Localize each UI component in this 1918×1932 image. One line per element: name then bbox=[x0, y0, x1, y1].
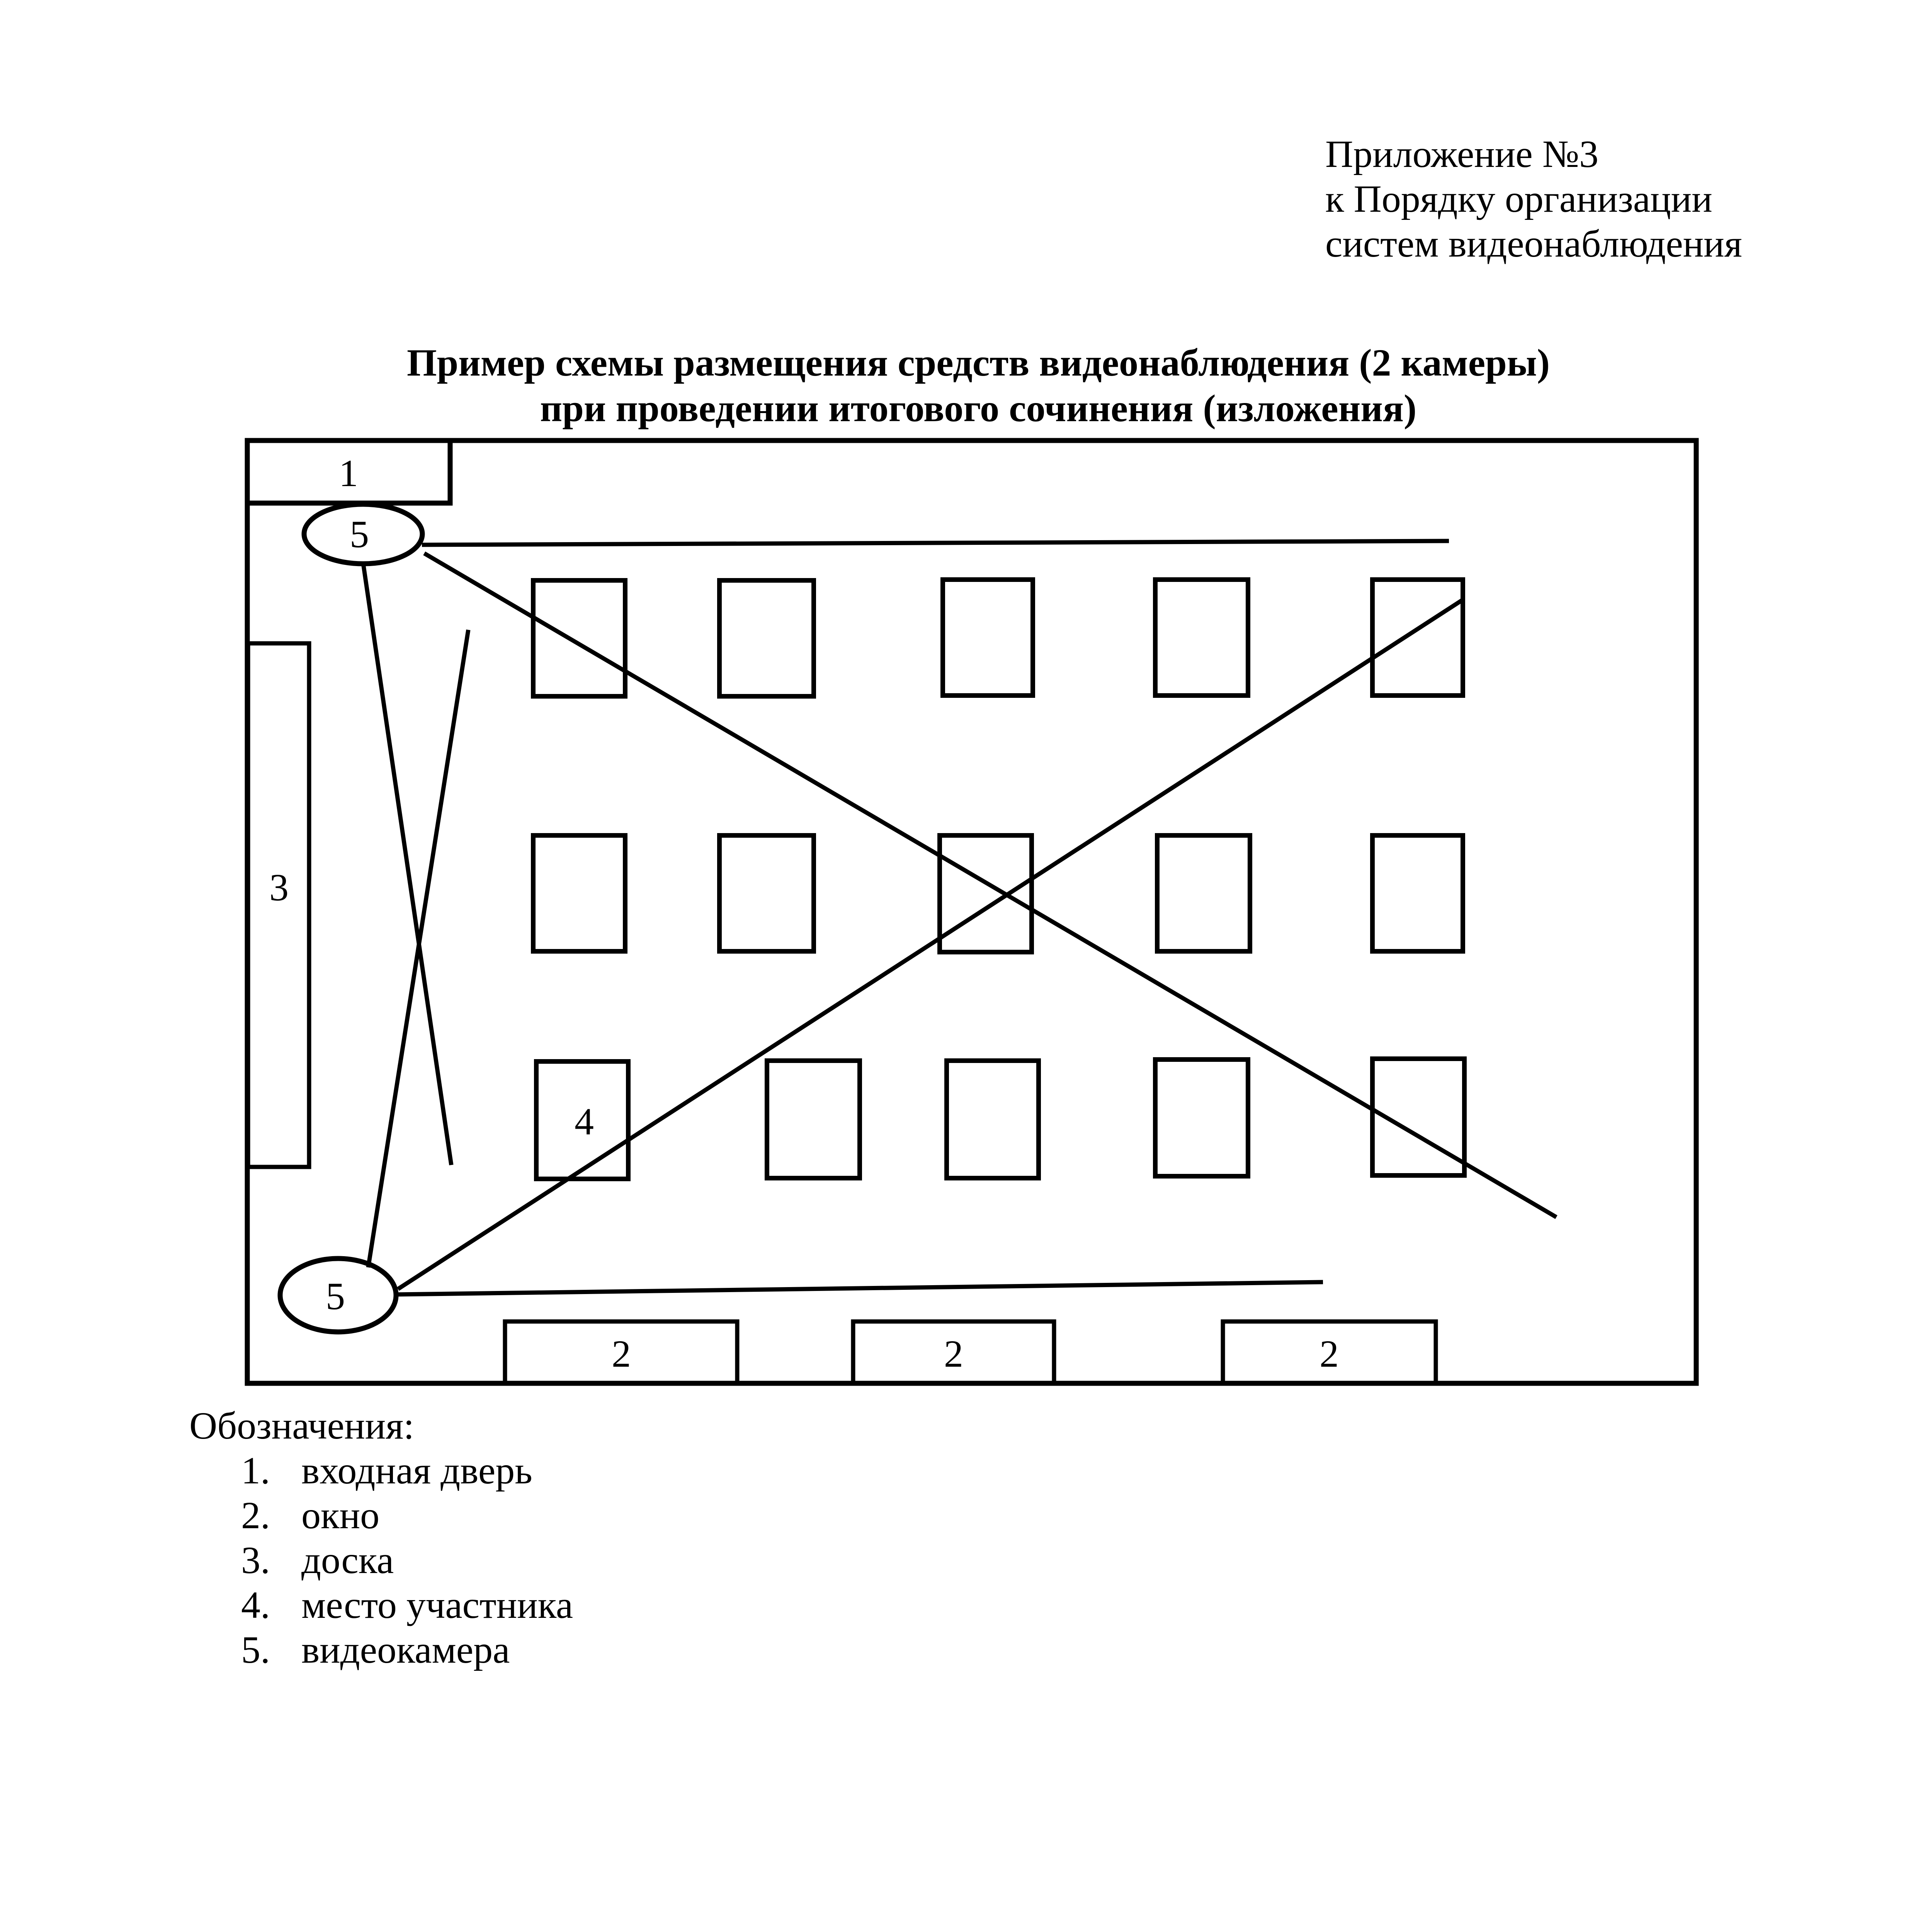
seat-box-r2c3 bbox=[940, 835, 1032, 952]
legend-heading: Обозначения: bbox=[189, 1403, 414, 1448]
legend-item-door: 1.входная дверь bbox=[241, 1448, 573, 1493]
legend-item-window-text: окно bbox=[301, 1494, 379, 1537]
legend-item-camera-number: 5. bbox=[241, 1628, 301, 1672]
camera-top-sight-line-diagonal bbox=[424, 553, 1556, 1217]
seat-box-r1c1 bbox=[533, 580, 625, 696]
seat-box-r2c1 bbox=[533, 835, 625, 951]
legend-item-camera: 5.видеокамера bbox=[241, 1628, 573, 1672]
seat-box-r3c2 bbox=[767, 1061, 860, 1178]
entrance-door-label: 1 bbox=[339, 452, 358, 495]
legend-item-board: 3.доска bbox=[241, 1538, 573, 1583]
seat-box-r3c4 bbox=[1155, 1060, 1248, 1176]
legend-item-board-text: доска bbox=[301, 1539, 394, 1582]
legend-item-window: 2.окно bbox=[241, 1493, 573, 1538]
legend-list: 1.входная дверь 2.окно 3.доска 4.место у… bbox=[241, 1448, 573, 1672]
seat-box-r2c2 bbox=[719, 835, 814, 951]
seat-box-r1c3 bbox=[943, 580, 1033, 696]
camera-bottom-sight-line-left bbox=[368, 630, 468, 1267]
seat-box-r1c2 bbox=[719, 580, 814, 696]
seat-box-r1c4 bbox=[1155, 580, 1248, 696]
seat-box-r2c4 bbox=[1157, 835, 1250, 951]
legend-item-window-number: 2. bbox=[241, 1493, 301, 1538]
legend-item-seat: 4.место участника bbox=[241, 1583, 573, 1628]
legend-item-door-number: 1. bbox=[241, 1448, 301, 1493]
legend-item-seat-text: место участника bbox=[301, 1583, 573, 1626]
legend-item-door-text: входная дверь bbox=[301, 1449, 532, 1492]
seat-box-r1c5 bbox=[1372, 580, 1463, 696]
video-camera-top-label: 5 bbox=[350, 513, 369, 556]
window-2-label: 2 bbox=[944, 1332, 963, 1375]
participant-seat-label: 4 bbox=[575, 1100, 594, 1143]
legend-item-camera-text: видеокамера bbox=[301, 1628, 510, 1671]
legend-item-seat-number: 4. bbox=[241, 1583, 301, 1628]
video-camera-bottom-label: 5 bbox=[326, 1275, 345, 1318]
seat-box-r3c3 bbox=[947, 1061, 1039, 1178]
seat-box-r2c5 bbox=[1372, 835, 1463, 951]
camera-top-sight-line-horizontal bbox=[422, 541, 1449, 545]
board-label: 3 bbox=[269, 866, 289, 909]
camera-bottom-sight-line-diagonal bbox=[398, 600, 1463, 1289]
window-3-label: 2 bbox=[1319, 1332, 1339, 1375]
camera-bottom-sight-line-horizontal bbox=[397, 1282, 1323, 1294]
legend-item-board-number: 3. bbox=[241, 1538, 301, 1583]
camera-top-sight-line-left bbox=[363, 563, 451, 1165]
window-1-label: 2 bbox=[612, 1332, 631, 1375]
document-page: Приложение №3 к Порядку организации сист… bbox=[0, 0, 1918, 1932]
